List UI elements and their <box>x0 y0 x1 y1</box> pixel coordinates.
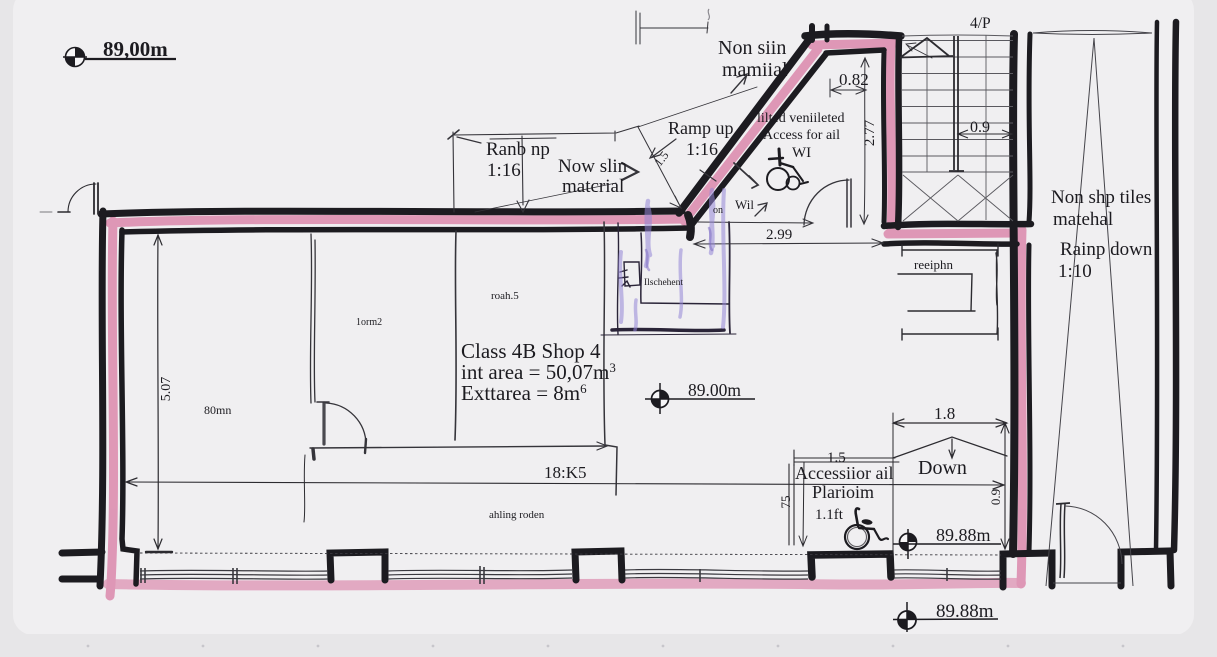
svg-text:0.9: 0.9 <box>970 119 990 136</box>
svg-text:1:16: 1:16 <box>487 160 521 181</box>
svg-text:Rainp down: Rainp down <box>1060 239 1153 260</box>
svg-text:ahling roden: ahling roden <box>489 509 545 521</box>
svg-text:Non siin: Non siin <box>718 37 786 59</box>
svg-text:Ilschehent: Ilschehent <box>644 278 683 288</box>
svg-text:reeiphn: reeiphn <box>914 257 953 272</box>
svg-text:Wil: Wil <box>735 197 754 212</box>
svg-text:Now slin: Now slin <box>558 156 628 177</box>
svg-text:2.77: 2.77 <box>862 119 878 146</box>
svg-text:5.07: 5.07 <box>159 377 174 402</box>
svg-text:0.82: 0.82 <box>839 70 869 89</box>
svg-text:matcrial: matcrial <box>562 176 624 197</box>
svg-text:on: on <box>713 205 723 216</box>
svg-text:1.8: 1.8 <box>934 404 955 423</box>
svg-text:Non shp tiles: Non shp tiles <box>1051 187 1151 208</box>
svg-text:89.88m: 89.88m <box>936 601 994 622</box>
svg-text:89.88m: 89.88m <box>936 525 991 545</box>
svg-text:matehal: matehal <box>1053 209 1113 230</box>
svg-text:89,00m: 89,00m <box>103 37 168 61</box>
svg-text:4/P: 4/P <box>970 15 991 32</box>
svg-text:Down: Down <box>918 457 967 479</box>
svg-text:89.00m: 89.00m <box>688 380 741 400</box>
svg-text:1:10: 1:10 <box>1058 261 1092 282</box>
svg-text:80mn: 80mn <box>204 403 231 417</box>
svg-text:roah.5: roah.5 <box>491 290 519 302</box>
svg-text:Exttarea = 8m6: Exttarea = 8m6 <box>461 381 587 405</box>
svg-text:lilted veniileted: lilted veniileted <box>757 111 844 126</box>
svg-text:1.1ft: 1.1ft <box>815 507 844 523</box>
svg-text:18:K5: 18:K5 <box>544 463 587 482</box>
svg-text:1:16: 1:16 <box>686 139 718 159</box>
svg-text:WI: WI <box>792 145 811 161</box>
svg-text:2.99: 2.99 <box>766 227 792 243</box>
svg-text:75: 75 <box>778 496 793 509</box>
svg-text:Ramp up: Ramp up <box>668 118 734 138</box>
svg-text:Accessiior ail: Accessiior ail <box>795 463 893 483</box>
svg-text:Plarioim: Plarioim <box>812 482 874 502</box>
svg-text:0.9: 0.9 <box>988 489 1003 505</box>
svg-text:Ranb np: Ranb np <box>486 139 550 160</box>
svg-text:Access for ail: Access for ail <box>763 128 840 143</box>
svg-text:1orm2: 1orm2 <box>356 317 382 328</box>
svg-text:mamiial: mamiial <box>722 59 788 81</box>
